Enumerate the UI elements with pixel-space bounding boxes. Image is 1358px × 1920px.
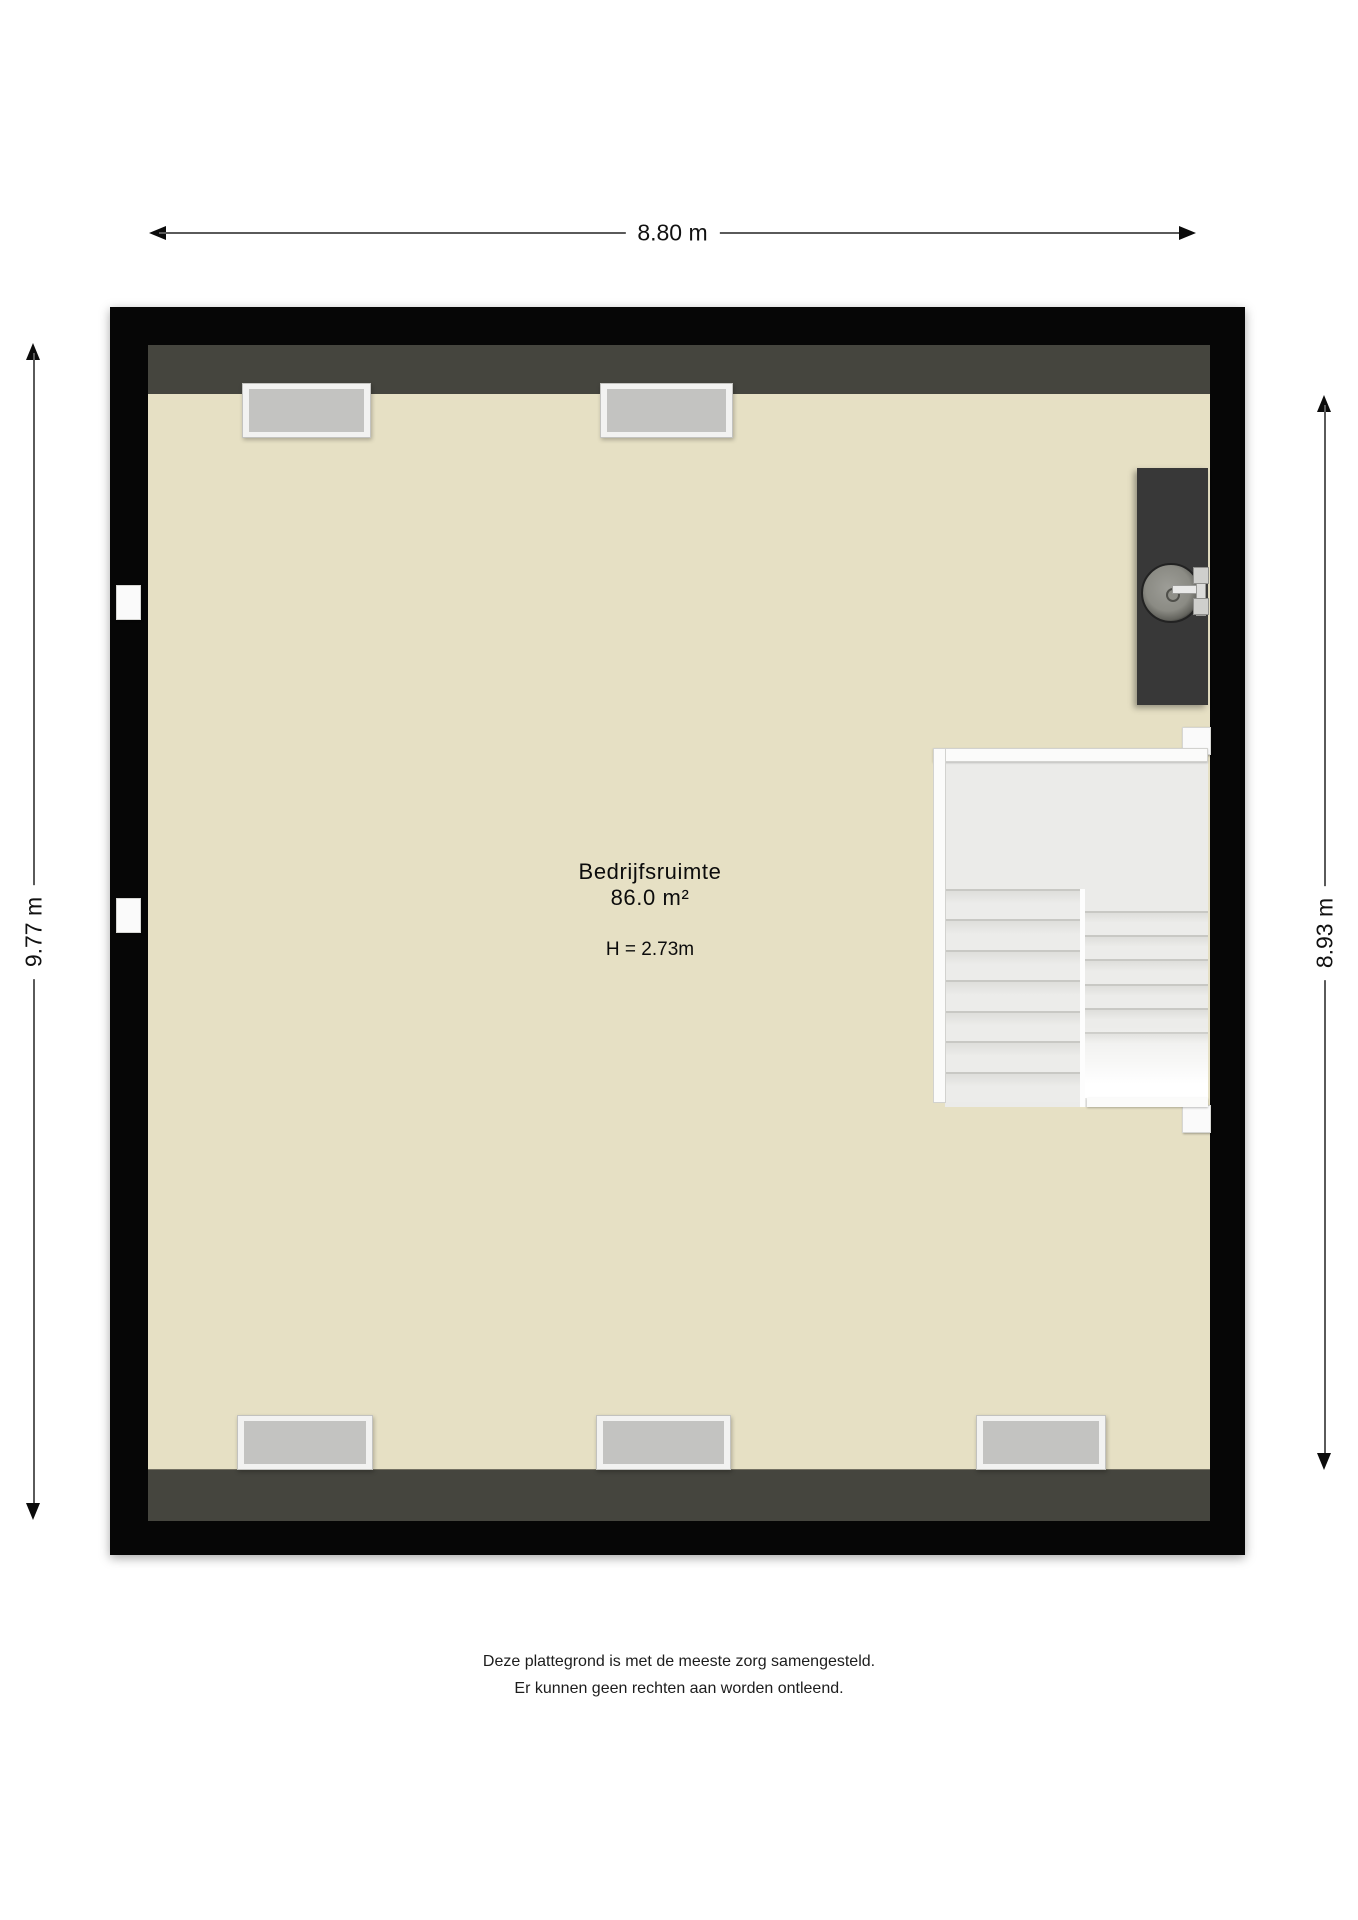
- wall-marker-left-1: [116, 585, 141, 620]
- window-glass: [244, 1421, 366, 1464]
- floorplan-canvas: 8.80 m 9.77 m 8.93 m: [0, 0, 1358, 1920]
- faucet-knob-icon: [1193, 598, 1209, 615]
- room-label: Bedrijfsruimte 86.0 m² H = 2.73m: [500, 859, 800, 961]
- stair-step: [945, 1072, 1080, 1102]
- window-top-2: [600, 383, 733, 438]
- stairs-bottom-stringer: [1087, 1098, 1208, 1107]
- disclaimer: Deze plattegrond is met de meeste zorg s…: [0, 1648, 1358, 1702]
- room-area-label: 86.0 m²: [500, 885, 800, 911]
- dimension-left-label: 9.77 m: [21, 884, 48, 978]
- staircase-body: [945, 761, 1208, 1107]
- sink-counter: [1137, 468, 1208, 705]
- window-glass: [607, 389, 726, 432]
- window-bottom-3: [976, 1415, 1106, 1470]
- stair-step: [945, 980, 1080, 1010]
- stair-step: [1085, 935, 1208, 959]
- stair-step: [945, 919, 1080, 949]
- stairs-cutline-fade: [1085, 1026, 1208, 1098]
- stairs-left-flight: [945, 889, 1080, 1102]
- room-height-label: H = 2.73m: [500, 939, 800, 961]
- wall-marker-right-2: [1182, 1105, 1211, 1133]
- building-outline: Bedrijfsruimte 86.0 m² H = 2.73m: [110, 307, 1245, 1555]
- window-glass: [249, 389, 364, 432]
- stair-step: [945, 1011, 1080, 1041]
- disclaimer-line-2: Er kunnen geen rechten aan worden ontlee…: [0, 1675, 1358, 1702]
- stairs-left-stringer: [933, 748, 946, 1103]
- stair-step: [945, 889, 1080, 919]
- disclaimer-line-1: Deze plattegrond is met de meeste zorg s…: [0, 1648, 1358, 1675]
- dimension-top: 8.80 m: [149, 225, 1196, 241]
- dimension-left: 9.77 m: [26, 343, 42, 1520]
- stairs-top-stringer: [933, 748, 1208, 762]
- dimension-right: 8.93 m: [1317, 395, 1333, 1470]
- window-bottom-2: [596, 1415, 731, 1470]
- stair-step: [945, 1041, 1080, 1071]
- stair-step: [1085, 911, 1208, 935]
- window-glass: [983, 1421, 1099, 1464]
- dimension-right-label: 8.93 m: [1312, 885, 1339, 979]
- stair-step: [945, 950, 1080, 980]
- stair-step: [1085, 984, 1208, 1008]
- dimension-top-label: 8.80 m: [625, 220, 719, 247]
- window-glass: [603, 1421, 724, 1464]
- room-name-label: Bedrijfsruimte: [500, 859, 800, 885]
- faucet-knob-icon: [1193, 567, 1209, 584]
- window-bottom-1: [237, 1415, 373, 1470]
- staircase: [933, 748, 1208, 1107]
- stair-step: [1085, 959, 1208, 983]
- wall-inner-bottom: [148, 1470, 1210, 1521]
- wall-marker-left-2: [116, 898, 141, 933]
- window-top-1: [242, 383, 371, 438]
